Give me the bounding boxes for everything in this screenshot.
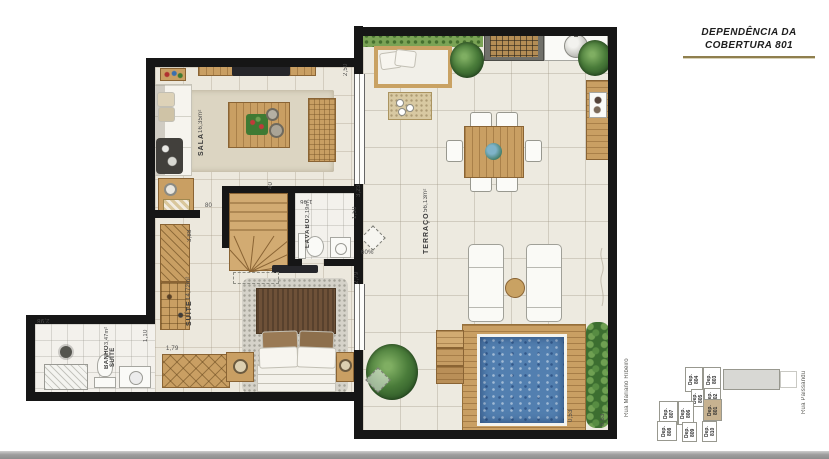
stair-treads <box>230 194 289 272</box>
potted-plant <box>578 40 612 76</box>
coffee-table-tray <box>266 108 279 121</box>
bed-throw <box>256 288 336 334</box>
dimension: 3,23 <box>356 179 363 197</box>
dimension: 1,79 <box>166 346 178 353</box>
wall-art-tray <box>160 68 186 81</box>
sun-lounger <box>526 244 562 322</box>
wall-stairs <box>222 186 288 193</box>
street-label-right: Rua Paissandu <box>801 352 807 432</box>
street-label-left: Rua Mariano Ribeiro <box>624 352 630 424</box>
dimension: 40 <box>268 177 275 189</box>
shower-head-icon <box>60 346 72 358</box>
bath-toilet-tank <box>94 377 116 388</box>
wall <box>608 27 617 439</box>
console-tray <box>589 92 607 118</box>
dimension: 1,50 <box>352 203 359 219</box>
dimension: 2,50 <box>343 58 350 76</box>
keyplan-unit-highlighted: Dep. 801 <box>703 399 722 421</box>
sliding-glass-door <box>354 74 365 184</box>
bed-pillow <box>259 346 299 368</box>
duct-size-label: 60% <box>361 250 374 257</box>
dimension: 2,79 <box>354 268 361 284</box>
wall <box>354 27 616 36</box>
room-label-sala: SALA 16,35m² <box>198 112 220 154</box>
rattan-cabinet <box>308 98 336 162</box>
pool <box>477 334 567 426</box>
sofa-pillow <box>158 107 175 122</box>
nightstand-lamp <box>339 359 352 372</box>
stair-headroom-dashed <box>233 272 279 284</box>
sun-lounger <box>468 244 504 322</box>
wall-lavabo <box>288 186 363 193</box>
grill-grate <box>490 35 538 57</box>
wall <box>146 58 362 67</box>
wall <box>26 392 363 401</box>
wardrobe-hanging <box>160 224 190 282</box>
wall <box>354 58 363 74</box>
lounger-side-table <box>505 278 525 298</box>
bed-pillow <box>297 346 337 368</box>
sofa-pillow <box>157 92 175 107</box>
keyplan-unit: Dep. 810 <box>702 421 717 442</box>
room-label-suite: SUÍTE 14,72m² <box>186 276 208 326</box>
floor-plan-page: 60% SALA 16,35m² TERRAÇO 56,13m² <box>0 0 829 459</box>
dimension: 0,53 <box>568 406 575 422</box>
keyplan-unit: Dep. 808 <box>657 421 677 441</box>
shower-tray <box>44 364 88 390</box>
sliding-glass-door <box>354 284 365 350</box>
signature-watermark <box>596 246 608 308</box>
lavabo-sink-basin <box>335 243 347 255</box>
deck-steps <box>436 330 464 348</box>
room-label-banho-suite: BANHO SUÍTE 3,47m² <box>104 328 132 368</box>
dining-chair <box>446 140 463 162</box>
side-table-decor <box>156 138 183 174</box>
coffee-table-tray <box>269 123 284 138</box>
dining-chair <box>525 140 542 162</box>
staircase <box>229 193 288 271</box>
coffee-table-plant <box>246 114 268 135</box>
bath-sink-basin <box>129 371 143 385</box>
drink-glass <box>406 104 414 112</box>
key-plan-lot-line <box>780 371 797 388</box>
table-centerpiece <box>485 143 502 160</box>
wall <box>354 430 617 439</box>
dimension: 1,10 <box>143 326 150 342</box>
dimension: 6,63 <box>600 410 607 426</box>
deck-steps <box>436 366 464 384</box>
dimension: 80 <box>205 203 212 210</box>
key-plan-building-mass <box>723 369 780 390</box>
drink-glass <box>396 99 404 107</box>
room-label-terraco: TERRAÇO 56,13m² <box>423 192 447 250</box>
wall <box>26 315 35 401</box>
title-underline <box>683 56 815 58</box>
drink-glass <box>398 108 406 116</box>
plan-title-line1: DEPENDÊNCIA DA <box>683 26 815 39</box>
key-plan: Dep. 804 Dep. 803 Dep. 805 Dep. 802 Dep.… <box>645 358 815 450</box>
daybed-pillow <box>394 49 417 68</box>
nightstand-lamp <box>233 359 248 374</box>
dimension: 2,98 <box>37 316 49 323</box>
wall-lavabo <box>324 259 363 266</box>
dresser <box>162 354 230 388</box>
dimension: 1,46 <box>300 197 312 204</box>
wall-hall <box>146 210 200 218</box>
keyplan-unit: Dep. 809 <box>682 422 697 442</box>
page-divider-bar <box>0 451 829 459</box>
wall-stairs <box>222 186 229 248</box>
wall-lavabo <box>288 186 295 266</box>
wall <box>146 58 155 324</box>
room-label-lavabo: LAVABO 2,19m² <box>305 199 326 249</box>
wall-lavabo <box>288 259 302 266</box>
bar-tray-mirror <box>164 183 177 196</box>
potted-plant <box>450 42 484 78</box>
deck-steps <box>436 348 464 366</box>
plan-title-line2: COBERTURA 801 <box>683 39 815 52</box>
plan-title: DEPENDÊNCIA DA COBERTURA 801 <box>683 26 815 52</box>
dimension: 3,88 <box>187 226 194 242</box>
